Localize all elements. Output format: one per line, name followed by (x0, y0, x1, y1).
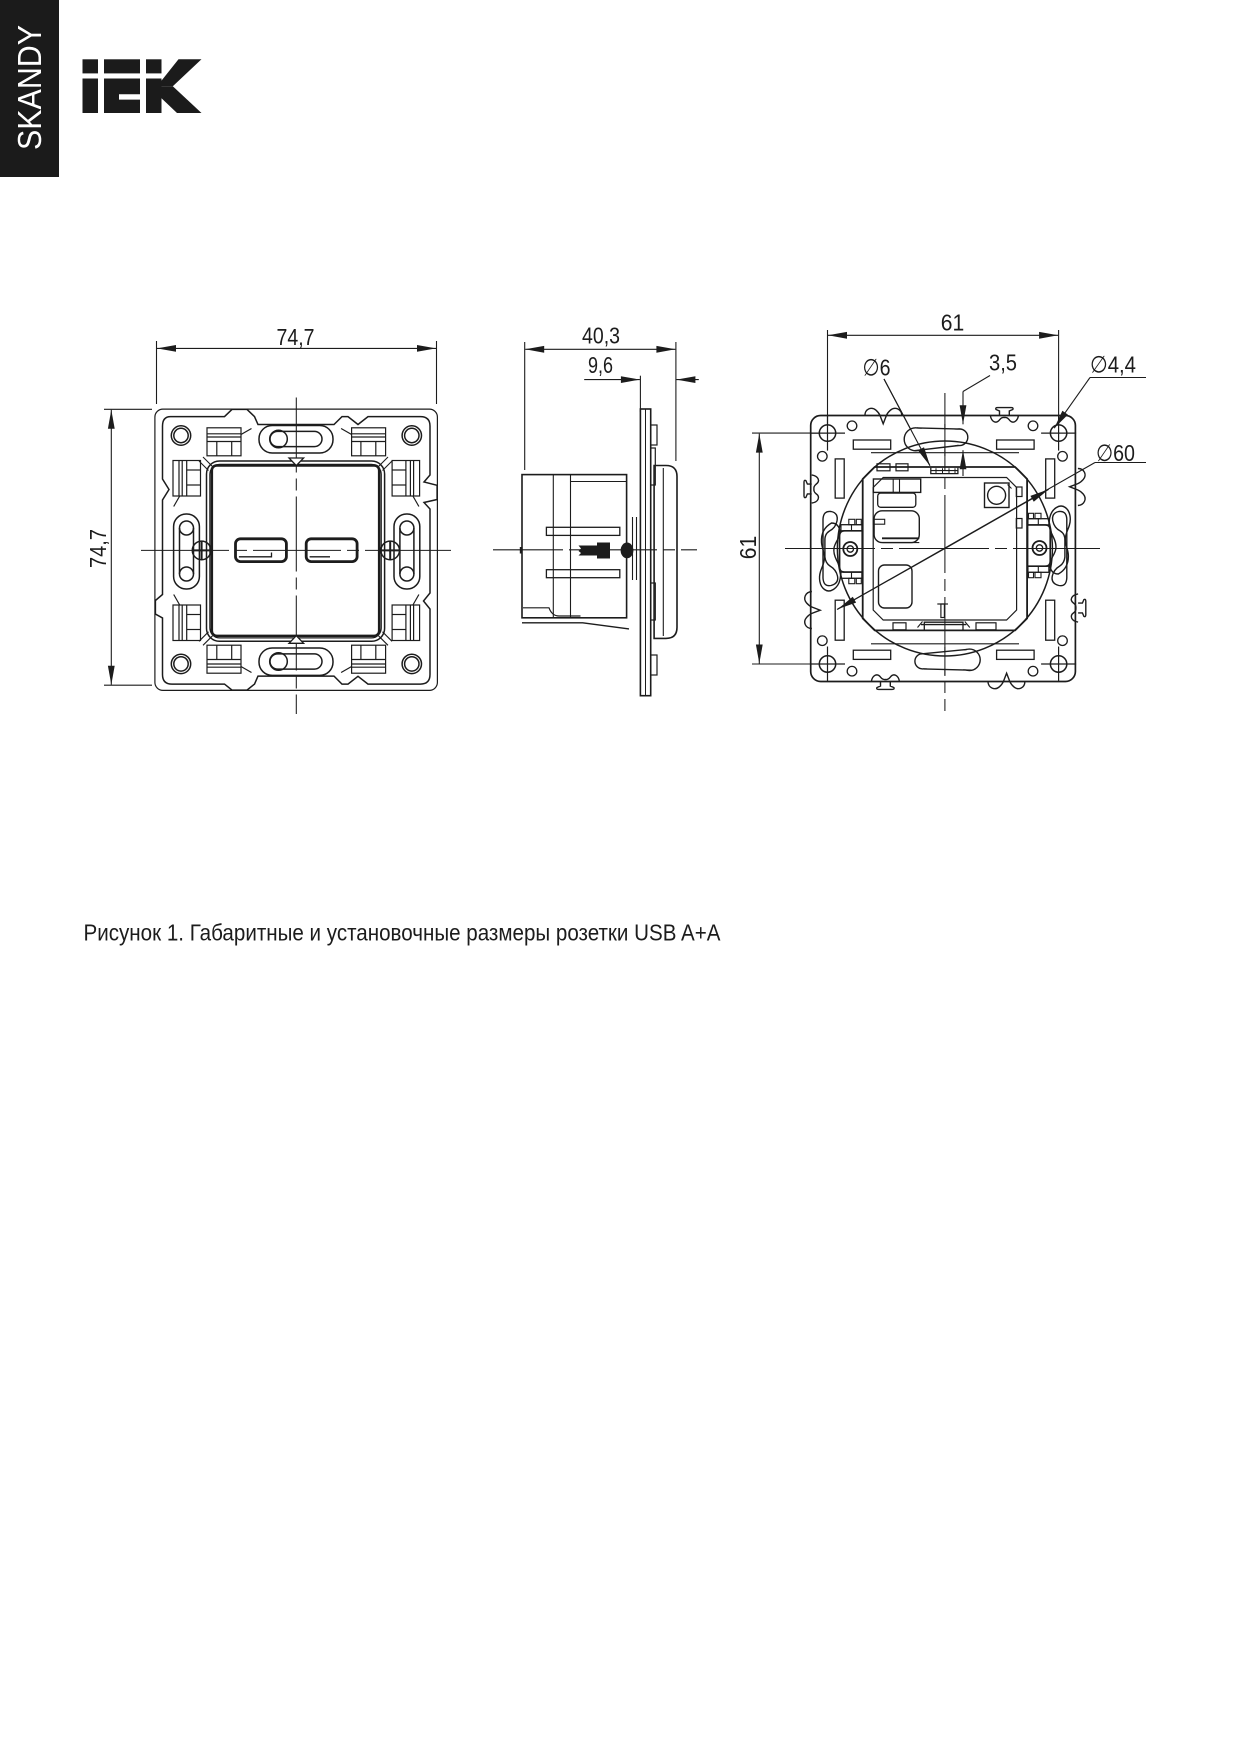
svg-text:∅6: ∅6 (863, 355, 891, 381)
svg-text:74,7: 74,7 (277, 324, 315, 350)
svg-text:∅4,4: ∅4,4 (1090, 352, 1136, 378)
svg-text:3,5: 3,5 (989, 350, 1017, 376)
svg-text:9,6: 9,6 (588, 352, 613, 378)
svg-text:74,7: 74,7 (85, 529, 111, 568)
svg-text:61: 61 (735, 536, 761, 560)
svg-text:SKANDY: SKANDY (12, 25, 49, 150)
svg-text:61: 61 (941, 310, 965, 336)
svg-text:40,3: 40,3 (582, 323, 620, 349)
svg-text:Рисунок 1. Габаритные и устано: Рисунок 1. Габаритные и установочные раз… (84, 920, 721, 946)
